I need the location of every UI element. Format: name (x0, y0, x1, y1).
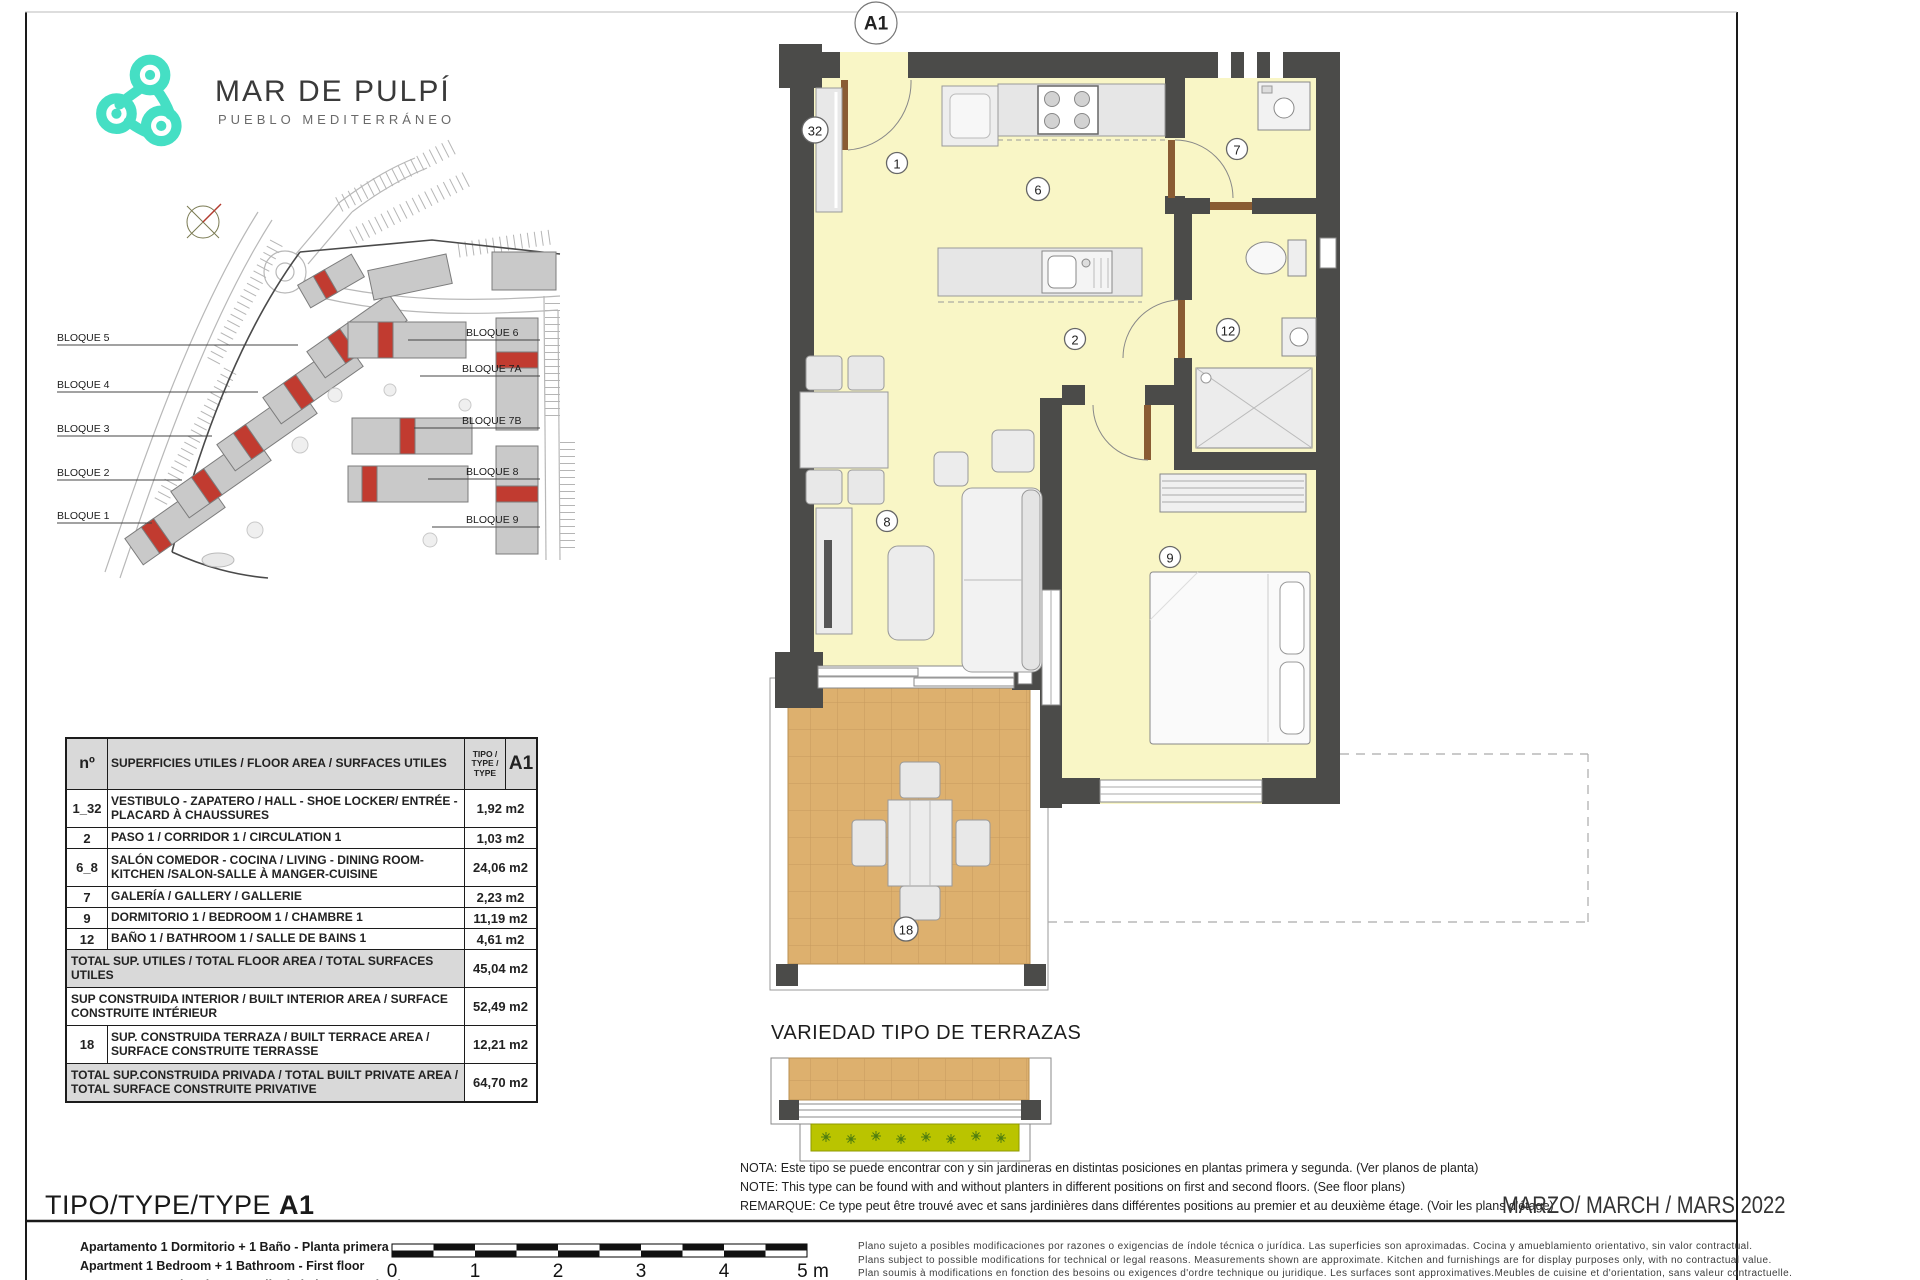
header-desc: SUPERFICIES UTILES / FLOOR AREA / SURFAC… (108, 739, 465, 789)
room-marker: 7 (1233, 143, 1240, 158)
table-row: 7GALERÍA / GALLERY / GALLERIE2,23 m2 (67, 887, 536, 908)
room-description: SUP. CONSTRUIDA TERRAZA / BUILT TERRACE … (108, 1026, 465, 1063)
room-marker: 6 (1034, 183, 1041, 198)
room-number: 6_8 (67, 849, 108, 886)
disclaimer-en: Plans subject to possible modifications … (858, 1254, 1758, 1268)
block-label: BLOQUE 1 (57, 510, 110, 522)
block-label: BLOQUE 9 (466, 514, 519, 526)
scale-tick: 5 m (797, 1261, 829, 1280)
scale-segment (475, 1251, 517, 1258)
scale-bar: 0 1 2 3 4 5 m (387, 1244, 829, 1280)
note-fr: REMARQUE: Ce type peut être trouvé avec … (740, 1197, 1540, 1216)
table-row: 6_8SALÓN COMEDOR - COCINA / LIVING - DIN… (67, 849, 536, 887)
note-es: NOTA: Este tipo se puede encontrar con y… (740, 1159, 1540, 1178)
scale-segment (600, 1244, 642, 1251)
scale-segment (766, 1244, 808, 1251)
table-row: 12BAÑO 1 / BATHROOM 1 / SALLE DE BAINS 1… (67, 929, 536, 950)
block-label: BLOQUE 3 (57, 423, 110, 435)
terrace-variants-title: VARIEDAD TIPO DE TERRAZAS (771, 1022, 1081, 1045)
room-number: 9 (67, 908, 108, 928)
floor-plan: A1 32 1 6 7 2 12 8 9 18 (770, 2, 1588, 990)
block-label: BLOQUE 7A (462, 363, 522, 375)
table-row: 9DORMITORIO 1 / BEDROOM 1 / CHAMBRE 111,… (67, 908, 536, 929)
scale-tick: 1 (470, 1261, 481, 1280)
note-en: NOTE: This type can be found with and wi… (740, 1178, 1540, 1197)
room-description: SUP CONSTRUIDA INTERIOR / BUILT INTERIOR… (67, 988, 465, 1025)
room-number: 18 (67, 1026, 108, 1063)
area-value: 64,70 m2 (465, 1064, 536, 1101)
table-row: TOTAL SUP.CONSTRUIDA PRIVADA / TOTAL BUI… (67, 1064, 536, 1101)
plan-sheet: BLOQUE 5 BLOQUE 4 BLOQUE 3 BLOQUE 2 BLOQ… (0, 0, 1920, 1280)
room-description: TOTAL SUP.CONSTRUIDA PRIVADA / TOTAL BUI… (67, 1064, 465, 1101)
area-value: 4,61 m2 (465, 929, 536, 949)
disclaimer-block: Plano sujeto a posibles modificaciones p… (858, 1240, 1758, 1280)
block-label: BLOQUE 8 (466, 466, 519, 478)
room-description: TOTAL SUP. UTILES / TOTAL FLOOR AREA / T… (67, 950, 465, 987)
room-description: BAÑO 1 / BATHROOM 1 / SALLE DE BAINS 1 (108, 929, 465, 949)
terrace-pillar (776, 964, 798, 986)
apartment-descriptions: Apartamento 1 Dormitorio + 1 Baño - Plan… (80, 1238, 427, 1280)
room-number: 7 (67, 887, 108, 907)
room-description: VESTIBULO - ZAPATERO / HALL - SHOE LOCKE… (108, 790, 465, 827)
type-label: TIPO/TYPE/TYPE (45, 1190, 279, 1220)
room-marker: 2 (1071, 333, 1078, 348)
area-value: 52,49 m2 (465, 988, 536, 1025)
room-description: GALERÍA / GALLERY / GALLERIE (108, 887, 465, 907)
table-row: TOTAL SUP. UTILES / TOTAL FLOOR AREA / T… (67, 950, 536, 988)
block-label: BLOQUE 4 (57, 379, 110, 391)
area-value: 2,23 m2 (465, 887, 536, 907)
scale-segment (517, 1244, 559, 1251)
site-plan: BLOQUE 5 BLOQUE 4 BLOQUE 3 BLOQUE 2 BLOQ… (57, 139, 575, 578)
brand-name: MAR DE PULPÍ (215, 75, 451, 109)
plan-code-bubble: A1 (855, 2, 897, 44)
scale-segment (724, 1251, 766, 1258)
type-code: A1 (279, 1190, 315, 1220)
plan-code: A1 (864, 14, 889, 35)
notes-block: NOTA: Este tipo se puede encontrar con y… (740, 1159, 1540, 1216)
apartment-desc-fr: Appartement 1 Chambre + 1 Salle de bains… (80, 1276, 427, 1280)
area-table: nº SUPERFICIES UTILES / FLOOR AREA / SUR… (65, 737, 538, 1103)
scale-segment (683, 1244, 725, 1251)
brand-tagline: PUEBLO MEDITERRÁNEO (218, 112, 455, 127)
scale-segment (434, 1244, 476, 1251)
bedroom-furniture (1150, 572, 1310, 744)
room-marker: 32 (808, 124, 822, 139)
room-description: SALÓN COMEDOR - COCINA / LIVING - DINING… (108, 849, 465, 886)
block-label: BLOQUE 6 (466, 327, 519, 339)
planter (811, 1124, 1019, 1151)
room-number: 1_32 (67, 790, 108, 827)
table-row: 2PASO 1 / CORRIDOR 1 / CIRCULATION 11,03… (67, 828, 536, 849)
issue-date: MARZO/ MARCH / MARS 2022 (1502, 1192, 1785, 1220)
area-value: 1,03 m2 (465, 828, 536, 848)
room-description: PASO 1 / CORRIDOR 1 / CIRCULATION 1 (108, 828, 465, 848)
room-marker: 18 (899, 923, 913, 938)
scale-segment (558, 1251, 600, 1258)
room-marker: 9 (1166, 551, 1173, 566)
room-number: 2 (67, 828, 108, 848)
vent-hatch (1205, 52, 1293, 78)
room-number: 12 (67, 929, 108, 949)
scale-segment (641, 1251, 683, 1258)
area-value: 45,04 m2 (465, 950, 536, 987)
room-marker: 8 (883, 515, 890, 530)
table-row: 1_32VESTIBULO - ZAPATERO / HALL - SHOE L… (67, 790, 536, 828)
header-tipo: TIPO / TYPE / TYPE (465, 739, 506, 789)
disclaimer-fr: Plan soumis à modifications en fonction … (858, 1267, 1758, 1280)
room-marker: 12 (1221, 324, 1235, 339)
disclaimer-es: Plano sujeto a posibles modificaciones p… (858, 1240, 1758, 1254)
brand-logo-icon (92, 46, 204, 164)
block-label: BLOQUE 5 (57, 332, 110, 344)
terrace-variant-drawing (771, 1058, 1051, 1161)
room-marker: 1 (893, 157, 900, 172)
washing-machine (1258, 82, 1310, 130)
room-description: DORMITORIO 1 / BEDROOM 1 / CHAMBRE 1 (108, 908, 465, 928)
area-table-header: nº SUPERFICIES UTILES / FLOOR AREA / SUR… (67, 739, 536, 790)
scale-tick: 4 (719, 1261, 730, 1280)
area-value: 24,06 m2 (465, 849, 536, 886)
area-value: 12,21 m2 (465, 1026, 536, 1063)
block-label: BLOQUE 2 (57, 467, 110, 479)
block-label: BLOQUE 7B (462, 415, 522, 427)
terrace-pillar (1024, 964, 1046, 986)
scale-tick: 3 (636, 1261, 647, 1280)
area-table-body: 1_32VESTIBULO - ZAPATERO / HALL - SHOE L… (67, 790, 536, 1101)
scale-tick: 2 (553, 1261, 564, 1280)
header-num: nº (67, 739, 108, 789)
area-value: 1,92 m2 (465, 790, 536, 827)
area-value: 11,19 m2 (465, 908, 536, 928)
compass-icon (187, 204, 221, 238)
apartment-desc-en: Apartment 1 Bedroom + 1 Bathroom - First… (80, 1257, 427, 1276)
header-type-code: A1 (506, 739, 536, 789)
shoe-locker (816, 88, 842, 212)
apartment-desc-es: Apartamento 1 Dormitorio + 1 Baño - Plan… (80, 1238, 427, 1257)
table-row: 18SUP. CONSTRUIDA TERRAZA / BUILT TERRAC… (67, 1026, 536, 1064)
table-row: SUP CONSTRUIDA INTERIOR / BUILT INTERIOR… (67, 988, 536, 1026)
type-title: TIPO/TYPE/TYPE A1 (45, 1190, 315, 1221)
